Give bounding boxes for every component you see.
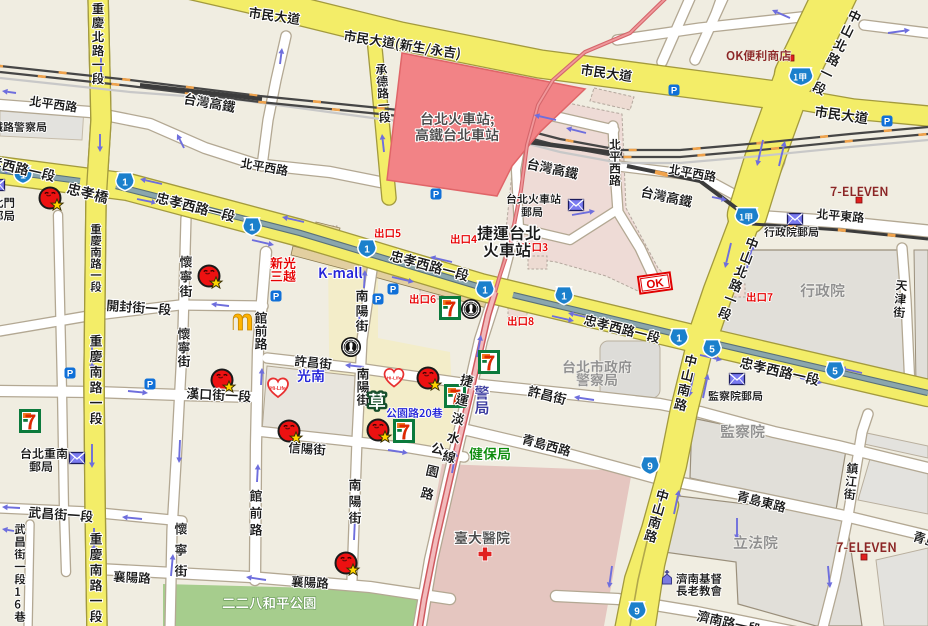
- svg-text:P: P: [884, 117, 891, 128]
- svg-text:1: 1: [676, 334, 682, 345]
- svg-text:P: P: [671, 86, 678, 97]
- svg-text:P: P: [273, 292, 280, 303]
- svg-text:Hi-Life: Hi-Life: [387, 376, 402, 382]
- svg-text:P: P: [433, 190, 440, 201]
- svg-text:P: P: [147, 380, 154, 391]
- svg-text:P: P: [390, 285, 397, 296]
- svg-text:1: 1: [122, 178, 128, 189]
- svg-text:1: 1: [364, 245, 370, 256]
- svg-text:9: 9: [634, 607, 640, 618]
- svg-text:1: 1: [249, 223, 255, 234]
- svg-text:OK: OK: [646, 277, 665, 291]
- svg-text:1: 1: [482, 286, 488, 297]
- svg-text:5: 5: [832, 367, 838, 378]
- svg-text:Hi-Life: Hi-Life: [270, 386, 286, 392]
- svg-text:9: 9: [647, 462, 653, 473]
- svg-text:P: P: [375, 295, 382, 306]
- svg-text:P: P: [67, 369, 74, 380]
- svg-text:5: 5: [709, 345, 715, 356]
- svg-text:1: 1: [561, 292, 567, 303]
